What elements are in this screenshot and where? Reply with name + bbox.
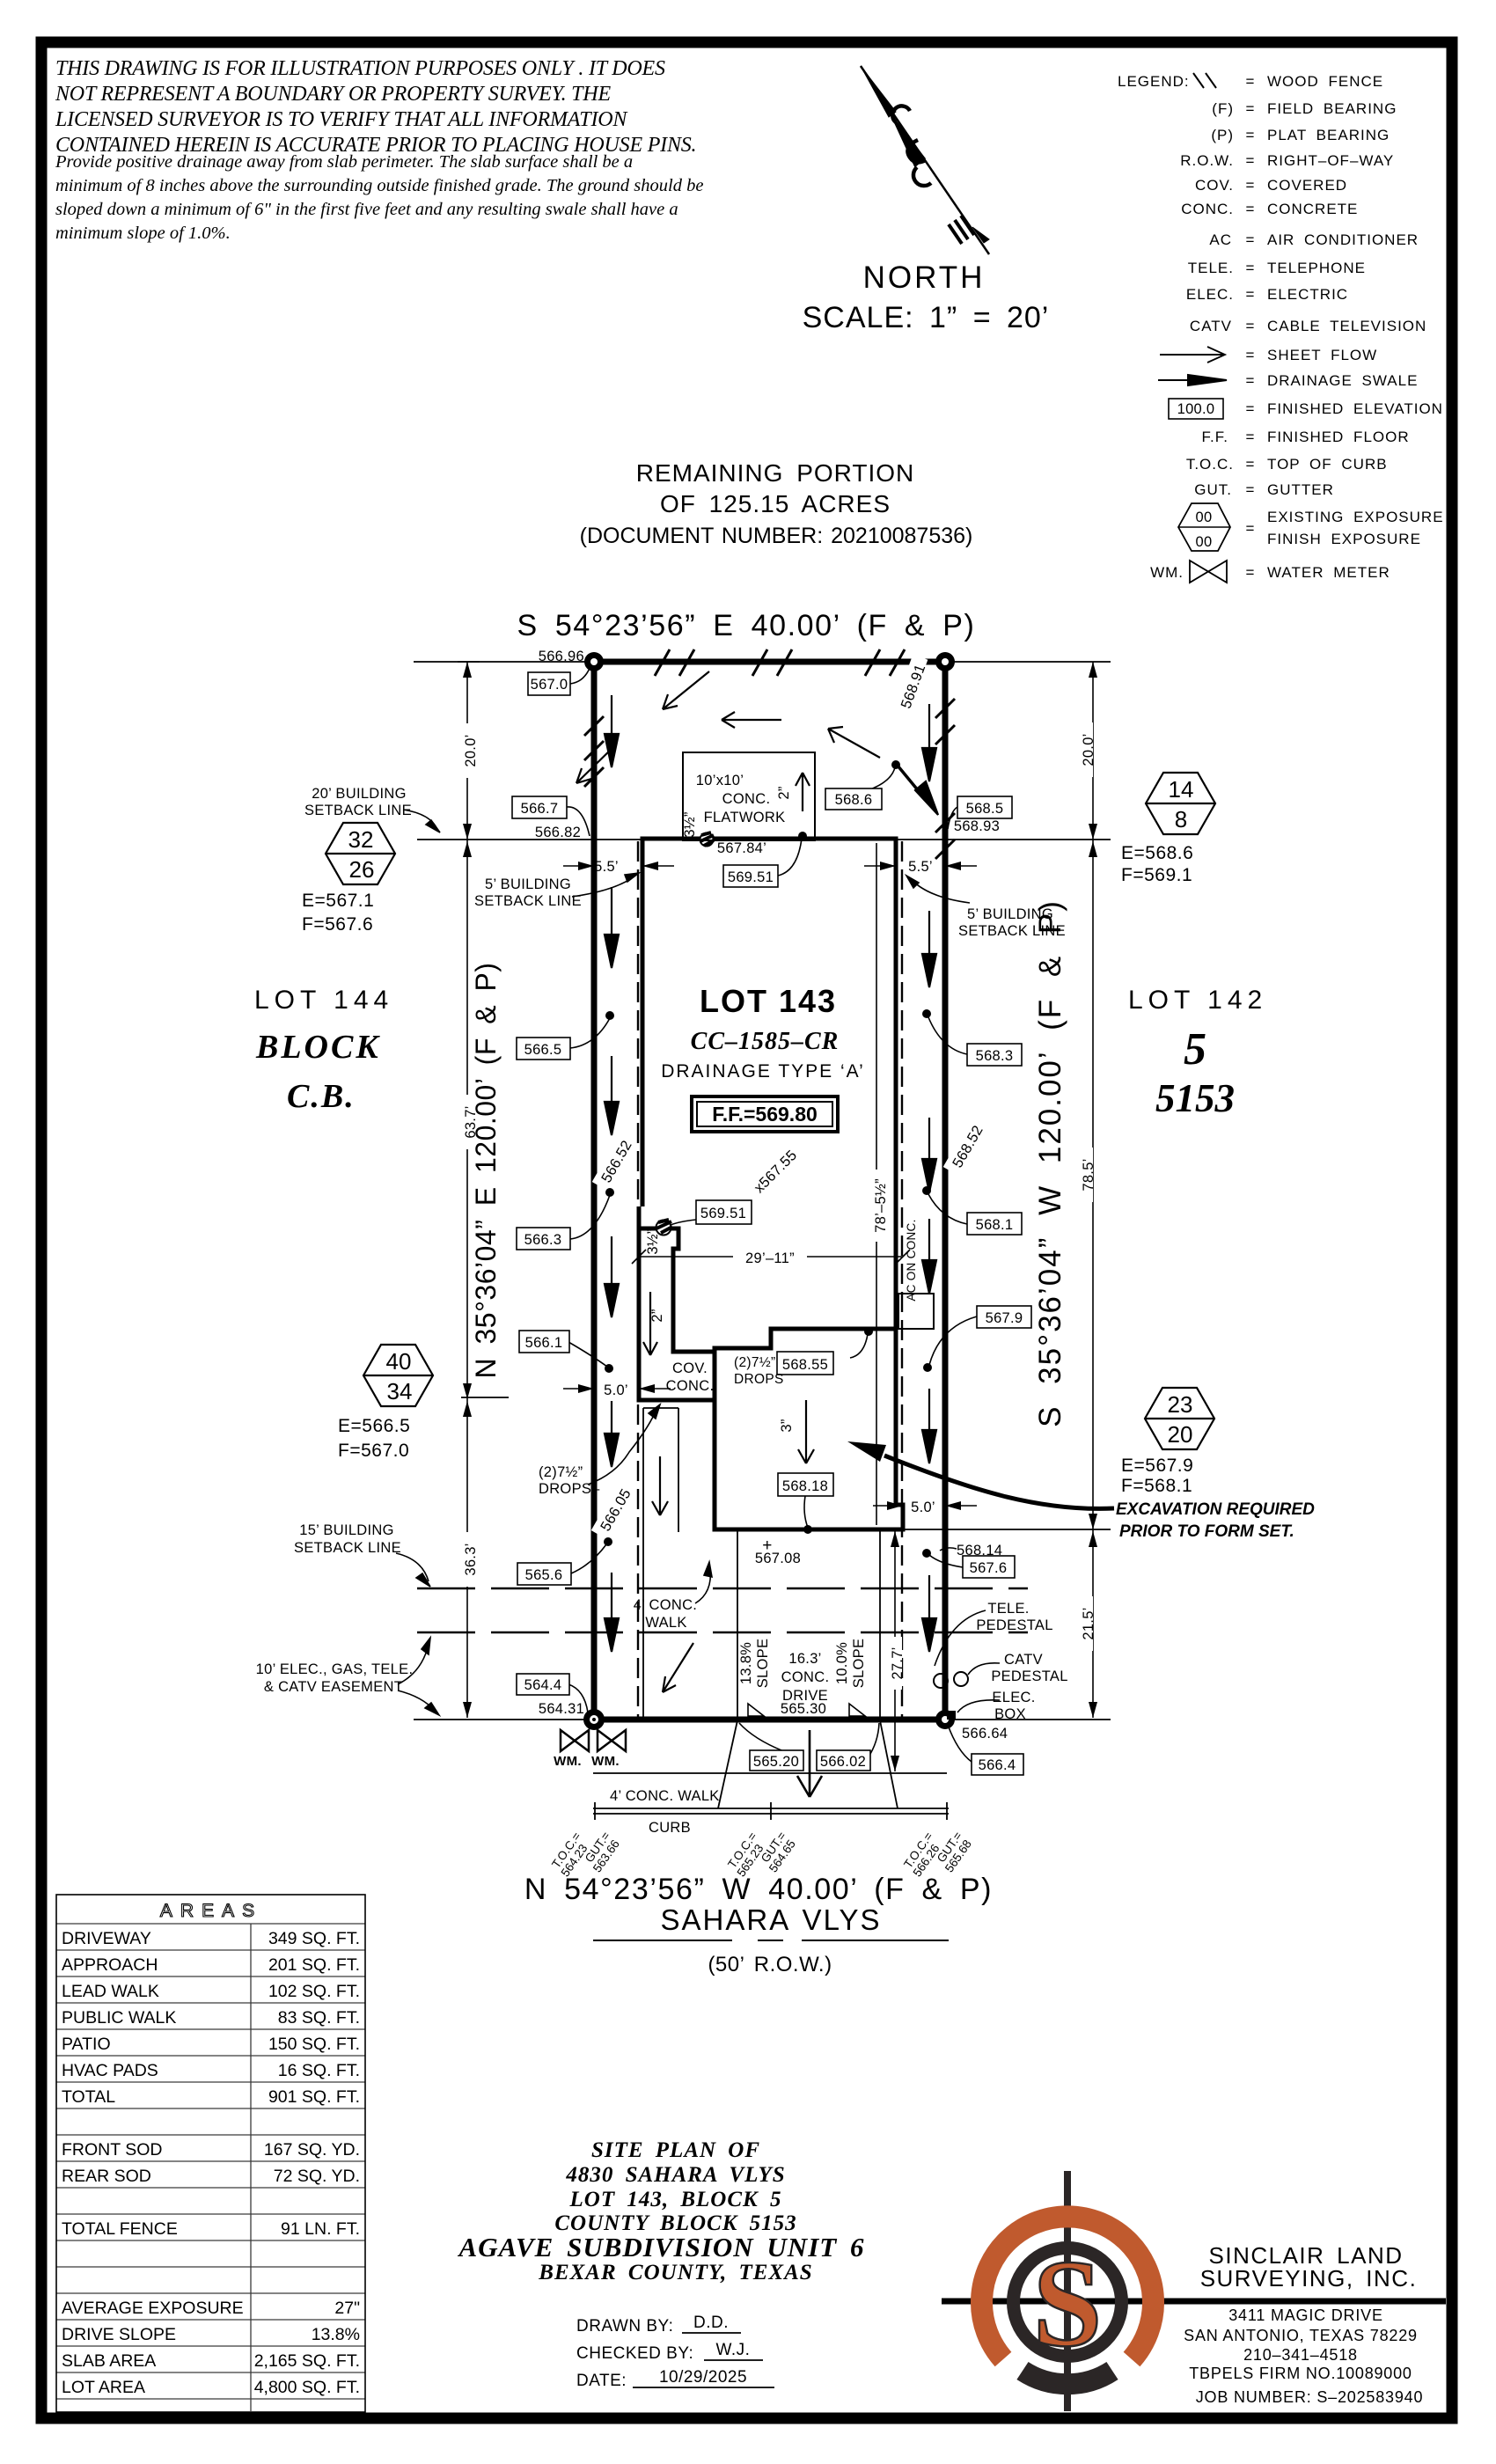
svg-text:566.3: 566.3 [524,1232,562,1248]
svg-text:F.F.=569.80: F.F.=569.80 [712,1103,818,1126]
svg-text:=: = [1246,429,1256,445]
svg-text:SLAB AREA: SLAB AREA [62,2351,156,2371]
svg-text:568.55: 568.55 [782,1357,828,1373]
svg-text:N 54°23’56” W 40.00’ (F & P): N 54°23’56” W 40.00’ (F & P) [524,1873,993,1906]
svg-text:567.0: 567.0 [531,677,568,693]
svg-text:568.93: 568.93 [954,818,1000,834]
svg-text:=: = [1246,564,1256,581]
svg-text:S 35°36’04” W 120.00’ (F & P): S 35°36’04” W 120.00’ (F & P) [1033,899,1067,1427]
svg-text:TOTAL FENCE: TOTAL FENCE [62,2219,178,2239]
svg-text:566.96: 566.96 [539,649,584,664]
svg-text:00: 00 [1196,534,1213,550]
svg-text:566.5: 566.5 [524,1042,562,1058]
svg-text:THIS DRAWING IS FOR ILLUSTRATI: THIS DRAWING IS FOR ILLUSTRATION PURPOSE… [55,57,665,80]
svg-text:10’x10’: 10’x10’ [696,773,744,788]
svg-text:WOOD FENCE: WOOD FENCE [1267,73,1383,90]
svg-text:DRIVE SLOPE: DRIVE SLOPE [62,2325,176,2344]
svg-text:568.18: 568.18 [782,1478,828,1494]
svg-text:567.84’: 567.84’ [717,840,766,856]
svg-text:RIGHT–OF–WAY: RIGHT–OF–WAY [1267,152,1394,169]
svg-text:32: 32 [348,826,374,853]
svg-text:SURVEYING, INC.: SURVEYING, INC. [1200,2265,1418,2292]
svg-text:JOB NUMBER: S–202583940: JOB NUMBER: S–202583940 [1196,2388,1424,2406]
svg-text:13.8%: 13.8% [312,2325,360,2344]
svg-text:PUBLIC WALK: PUBLIC WALK [62,2008,176,2028]
svg-text:ELECTRIC: ELECTRIC [1267,286,1348,303]
svg-text:TELE.: TELE. [987,1601,1029,1617]
svg-text:LEGEND:: LEGEND: [1118,73,1190,90]
svg-text:WATER METER: WATER METER [1267,564,1390,581]
svg-text:20’ BUILDING: 20’ BUILDING [312,786,407,802]
svg-text:(DOCUMENT NUMBER: 20210087536): (DOCUMENT NUMBER: 20210087536) [580,524,973,548]
svg-text:(F): (F) [1212,100,1234,117]
svg-text:SETBACK LINE: SETBACK LINE [474,893,582,909]
svg-text:=: = [1246,400,1256,417]
svg-text:D.D.: D.D. [693,2314,729,2332]
svg-text:COVERED: COVERED [1267,177,1347,194]
svg-text:AIR CONDITIONER: AIR CONDITIONER [1267,231,1419,248]
svg-text:=: = [1246,318,1256,334]
svg-text:F=567.6: F=567.6 [302,914,373,935]
svg-text:LEAD WALK: LEAD WALK [62,1982,159,2001]
svg-text:minimum slope of 1.0%.: minimum slope of 1.0%. [55,224,231,243]
svg-text:3½”: 3½” [645,1228,661,1254]
svg-text:TOTAL: TOTAL [62,2087,115,2107]
svg-text:SLOPE: SLOPE [851,1639,867,1689]
svg-text:27.7’: 27.7’ [890,1646,906,1679]
svg-text:=: = [1246,73,1256,90]
svg-text:R.O.W.: R.O.W. [1180,152,1234,169]
svg-text:EXCAVATION REQUIRED: EXCAVATION REQUIRED [1116,1500,1315,1519]
svg-text:DRAINAGE SWALE: DRAINAGE SWALE [1267,372,1418,389]
svg-text:91 LN. FT.: 91 LN. FT. [281,2219,360,2239]
svg-text:WALK: WALK [645,1615,686,1631]
svg-text:23: 23 [1168,1391,1193,1418]
svg-text:SCALE: 1” = 20’: SCALE: 1” = 20’ [803,301,1050,334]
svg-text:SAN ANTONIO, TEXAS 78229: SAN ANTONIO, TEXAS 78229 [1184,2327,1418,2344]
svg-text:ELEC.: ELEC. [1186,286,1234,303]
svg-text:565.6: 565.6 [525,1567,563,1583]
svg-text:4,800 SQ. FT.: 4,800 SQ. FT. [254,2378,360,2397]
svg-text:WM.: WM. [554,1754,582,1769]
svg-text:FRONT SOD: FRONT SOD [62,2140,162,2160]
svg-text:S: S [1033,2233,1103,2372]
svg-text:AC: AC [1209,231,1232,248]
svg-text:8: 8 [1175,806,1187,832]
svg-text:3411 MAGIC DRIVE: 3411 MAGIC DRIVE [1228,2306,1383,2324]
svg-text:LICENSED SURVEYOR IS TO VERIFY: LICENSED SURVEYOR IS TO VERIFY THAT ALL … [55,108,628,131]
svg-text:COV.: COV. [672,1360,708,1376]
svg-text:LOT 143: LOT 143 [700,983,837,1019]
svg-text:36.3’: 36.3’ [463,1543,479,1575]
svg-text:10.0%: 10.0% [834,1642,850,1684]
svg-text:PATIO: PATIO [62,2035,111,2054]
svg-text:=: = [1246,127,1256,143]
svg-text:(50’ R.O.W.): (50’ R.O.W.) [708,1953,832,1976]
svg-text:C.B.: C.B. [287,1078,356,1115]
svg-text:=: = [1246,347,1256,363]
svg-text:78.5’: 78.5’ [1081,1158,1096,1191]
svg-text:TELE.: TELE. [1188,260,1234,276]
svg-text:TOP OF CURB: TOP OF CURB [1267,456,1388,473]
svg-text:100.0: 100.0 [1177,401,1215,417]
svg-text:CATV: CATV [1004,1652,1043,1668]
svg-text:=: = [1246,177,1256,194]
svg-text:13.8%: 13.8% [738,1642,754,1684]
svg-text:GUT.: GUT. [1194,481,1232,498]
svg-text:564.31: 564.31 [539,1701,584,1717]
svg-text:E=567.9: E=567.9 [1121,1456,1193,1476]
svg-text:(2)7½”: (2)7½” [539,1464,583,1480]
svg-text:27": 27" [334,2299,360,2318]
svg-text:2”: 2” [649,1309,665,1322]
svg-text:N 35°36’04” E 120.00’ (F & P): N 35°36’04” E 120.00’ (F & P) [470,963,502,1379]
svg-text:150 SQ. FT.: 150 SQ. FT. [268,2035,360,2054]
svg-text:72 SQ. YD.: 72 SQ. YD. [274,2167,360,2186]
svg-text:BOX: BOX [994,1706,1026,1722]
svg-text:34: 34 [387,1378,413,1404]
svg-text:EXISTING EXPOSURE: EXISTING EXPOSURE [1267,509,1444,525]
svg-text:E=568.6: E=568.6 [1121,843,1193,863]
svg-text:CATV: CATV [1190,318,1232,334]
svg-text:LOT 144: LOT 144 [254,986,393,1015]
svg-text:567.6: 567.6 [970,1560,1008,1576]
svg-text:FINISHED ELEVATION: FINISHED ELEVATION [1267,400,1443,417]
svg-text:FINISH EXPOSURE: FINISH EXPOSURE [1267,531,1421,547]
svg-text:901 SQ. FT.: 901 SQ. FT. [268,2087,360,2107]
svg-text:PEDESTAL: PEDESTAL [991,1668,1067,1684]
svg-text:DRAINAGE TYPE ‘A’: DRAINAGE TYPE ‘A’ [661,1061,865,1082]
svg-text:567.9: 567.9 [986,1310,1023,1326]
svg-text:5.0’: 5.0’ [911,1500,935,1515]
svg-text:=: = [1246,372,1256,389]
svg-text:CC–1585–CR: CC–1585–CR [691,1028,840,1055]
svg-text:LOT 143, BLOCK 5: LOT 143, BLOCK 5 [569,2188,782,2211]
svg-text:5.5’: 5.5’ [594,859,619,875]
svg-text:W.J.: W.J. [716,2341,751,2359]
svg-text:5.0’: 5.0’ [604,1382,628,1398]
svg-text:2,165 SQ. FT.: 2,165 SQ. FT. [254,2351,360,2371]
svg-text:minimum of 8 inches above the: minimum of 8 inches above the surroundin… [55,176,703,195]
svg-text:4830 SAHARA VLYS: 4830 SAHARA VLYS [565,2163,785,2187]
svg-text:DROPS: DROPS [734,1372,784,1387]
svg-text:566.64: 566.64 [962,1726,1008,1742]
svg-text:40: 40 [386,1348,412,1375]
svg-text:AVERAGE EXPOSURE: AVERAGE EXPOSURE [62,2299,244,2318]
svg-text:SETBACK LINE: SETBACK LINE [304,803,412,818]
svg-text:566.4: 566.4 [979,1757,1016,1773]
svg-text:(2)7½”: (2)7½” [734,1355,775,1370]
svg-text:21.5’: 21.5’ [1081,1607,1096,1639]
svg-text:=: = [1246,231,1256,248]
svg-text:5153: 5153 [1155,1076,1235,1120]
svg-text:F=567.0: F=567.0 [338,1441,409,1461]
svg-text:APPROACH: APPROACH [62,1955,158,1975]
svg-text:=: = [1246,456,1256,473]
svg-text:FIELD BEARING: FIELD BEARING [1267,100,1397,117]
svg-text:T.O.C.: T.O.C. [1186,456,1234,473]
svg-text:4’ CONC. WALK: 4’ CONC. WALK [610,1788,720,1804]
svg-text:16.3’: 16.3’ [788,1651,821,1667]
svg-text:SHEET FLOW: SHEET FLOW [1267,347,1377,363]
svg-text:PRIOR TO FORM SET.: PRIOR TO FORM SET. [1119,1522,1294,1541]
svg-text:78’–5½”: 78’–5½” [873,1178,889,1233]
svg-text:LOT AREA: LOT AREA [62,2378,145,2397]
svg-text:26: 26 [349,856,375,883]
svg-text:569.51: 569.51 [728,869,774,885]
svg-text:4’ CONC.: 4’ CONC. [634,1597,697,1613]
svg-text:+: + [762,1536,772,1555]
svg-text:SLOPE: SLOPE [755,1639,771,1689]
svg-text:NORTH: NORTH [863,260,986,295]
svg-text:20: 20 [1168,1421,1193,1448]
svg-text:5’ BUILDING: 5’ BUILDING [485,876,571,892]
svg-text:=: = [1246,100,1256,117]
svg-text:210–341–4518: 210–341–4518 [1243,2346,1358,2364]
svg-text:PEDESTAL: PEDESTAL [976,1617,1052,1633]
svg-text:GUTTER: GUTTER [1267,481,1334,498]
svg-text:=: = [1246,481,1256,498]
svg-text:CONC.: CONC. [1181,201,1234,217]
svg-text:SAHARA VLYS: SAHARA VLYS [661,1903,882,1936]
svg-text:102 SQ. FT.: 102 SQ. FT. [268,1982,360,2001]
svg-text:5: 5 [1184,1024,1206,1074]
svg-text:DRIVE: DRIVE [782,1688,828,1704]
svg-text:566.7: 566.7 [521,801,559,817]
svg-text:AC ON CONC.: AC ON CONC. [905,1219,918,1301]
svg-text:20.0’: 20.0’ [463,734,479,766]
svg-text:CONC.: CONC. [666,1378,715,1394]
svg-text:ELEC.: ELEC. [992,1690,1035,1705]
svg-text:AREAS: AREAS [160,1901,262,1921]
svg-text:14: 14 [1169,776,1194,803]
svg-text:PLAT BEARING: PLAT BEARING [1267,127,1390,143]
svg-text:S 54°23’56” E 40.00’ (F & P): S 54°23’56” E 40.00’ (F & P) [517,609,976,642]
svg-text:CONC.: CONC. [781,1669,830,1685]
svg-text:F.F.: F.F. [1202,429,1228,445]
svg-text:10/29/2025: 10/29/2025 [659,2368,747,2387]
svg-text:FLATWORK: FLATWORK [704,810,786,825]
svg-text:CURB: CURB [649,1820,691,1836]
svg-text:BLOCK: BLOCK [255,1029,381,1066]
svg-text:(P): (P) [1211,127,1234,143]
svg-text:DRAWN BY:: DRAWN BY: [576,2317,673,2336]
svg-text:SITE PLAN OF: SITE PLAN OF [591,2138,760,2162]
svg-text:CHECKED BY:: CHECKED BY: [576,2344,693,2363]
svg-text:349 SQ. FT.: 349 SQ. FT. [268,1929,360,1948]
svg-text:CONCRETE: CONCRETE [1267,201,1358,217]
svg-text:DATE:: DATE: [576,2372,627,2390]
svg-text:NOT REPRESENT A BOUNDARY OR PR: NOT REPRESENT A BOUNDARY OR PROPERTY SUR… [55,83,611,106]
svg-text:HVAC PADS: HVAC PADS [62,2061,158,2080]
svg-text:16 SQ. FT.: 16 SQ. FT. [278,2061,360,2080]
svg-text:F=569.1: F=569.1 [1121,865,1192,885]
svg-text:COV.: COV. [1195,177,1234,194]
svg-text:SETBACK LINE: SETBACK LINE [294,1540,401,1556]
svg-text:29’–11”: 29’–11” [745,1250,795,1266]
svg-text:566.82: 566.82 [535,825,581,840]
svg-text:=: = [1246,152,1256,169]
svg-text:AGAVE SUBDIVISION UNIT 6: AGAVE SUBDIVISION UNIT 6 [458,2232,865,2262]
svg-text:568.1: 568.1 [976,1217,1014,1233]
svg-text:10’ ELEC., GAS, TELE.: 10’ ELEC., GAS, TELE. [256,1661,414,1677]
svg-text:FINISHED FLOOR: FINISHED FLOOR [1267,429,1410,445]
svg-text:569.51: 569.51 [700,1206,746,1221]
svg-text:Provide positive drainage away: Provide positive drainage away from slab… [55,152,633,172]
svg-text:=: = [1246,520,1256,537]
svg-text:=: = [1246,201,1256,217]
svg-text:TBPELS FIRM NO.10089000: TBPELS FIRM NO.10089000 [1189,2365,1412,2382]
svg-text:3”: 3” [779,1419,795,1432]
svg-text:566.02: 566.02 [820,1754,866,1770]
svg-text:WM.: WM. [1150,564,1184,581]
svg-text:OF 125.15 ACRES: OF 125.15 ACRES [660,490,891,517]
svg-text:568.3: 568.3 [976,1048,1014,1064]
svg-text:F=568.1: F=568.1 [1121,1476,1192,1496]
svg-text:TELEPHONE: TELEPHONE [1267,260,1366,276]
svg-text:& CATV EASEMENT: & CATV EASEMENT [264,1679,403,1695]
svg-text:568.6: 568.6 [835,792,873,808]
svg-text:=: = [1246,286,1256,303]
svg-text:15’ BUILDING: 15’ BUILDING [299,1522,394,1538]
svg-text:201 SQ. FT.: 201 SQ. FT. [268,1955,360,1975]
svg-text:=: = [1246,260,1256,276]
svg-text:E=566.5: E=566.5 [338,1416,410,1436]
svg-text:565.20: 565.20 [753,1754,799,1770]
svg-text:564.4: 564.4 [524,1677,562,1693]
svg-text:DRIVEWAY: DRIVEWAY [62,1929,151,1948]
svg-text:CABLE TELEVISION: CABLE TELEVISION [1267,318,1426,334]
svg-text:167 SQ. YD.: 167 SQ. YD. [264,2140,360,2160]
svg-text:DROPS–: DROPS– [539,1481,600,1497]
svg-text:CONC.: CONC. [722,791,771,807]
svg-text:LOT 142: LOT 142 [1128,986,1267,1015]
svg-text:2”: 2” [776,786,792,799]
svg-text:REAR SOD: REAR SOD [62,2167,151,2186]
svg-text:sloped down a minimum of 6" in: sloped down a minimum of 6" in the first… [55,200,678,219]
svg-text:83 SQ. FT.: 83 SQ. FT. [278,2008,360,2028]
svg-text:568.5: 568.5 [966,801,1004,817]
svg-text:00: 00 [1196,510,1213,525]
svg-text:20.0’: 20.0’ [1081,733,1096,766]
svg-text:568.14: 568.14 [957,1543,1002,1558]
svg-text:REMAINING PORTION: REMAINING PORTION [636,459,915,487]
svg-text:3½”: 3½” [682,811,698,837]
svg-text:566.1: 566.1 [525,1335,563,1351]
svg-text:E=567.1: E=567.1 [302,891,374,911]
svg-text:BEXAR COUNTY, TEXAS: BEXAR COUNTY, TEXAS [538,2261,812,2284]
svg-text:5.5’: 5.5’ [908,859,933,875]
svg-text:WM.: WM. [591,1754,620,1769]
